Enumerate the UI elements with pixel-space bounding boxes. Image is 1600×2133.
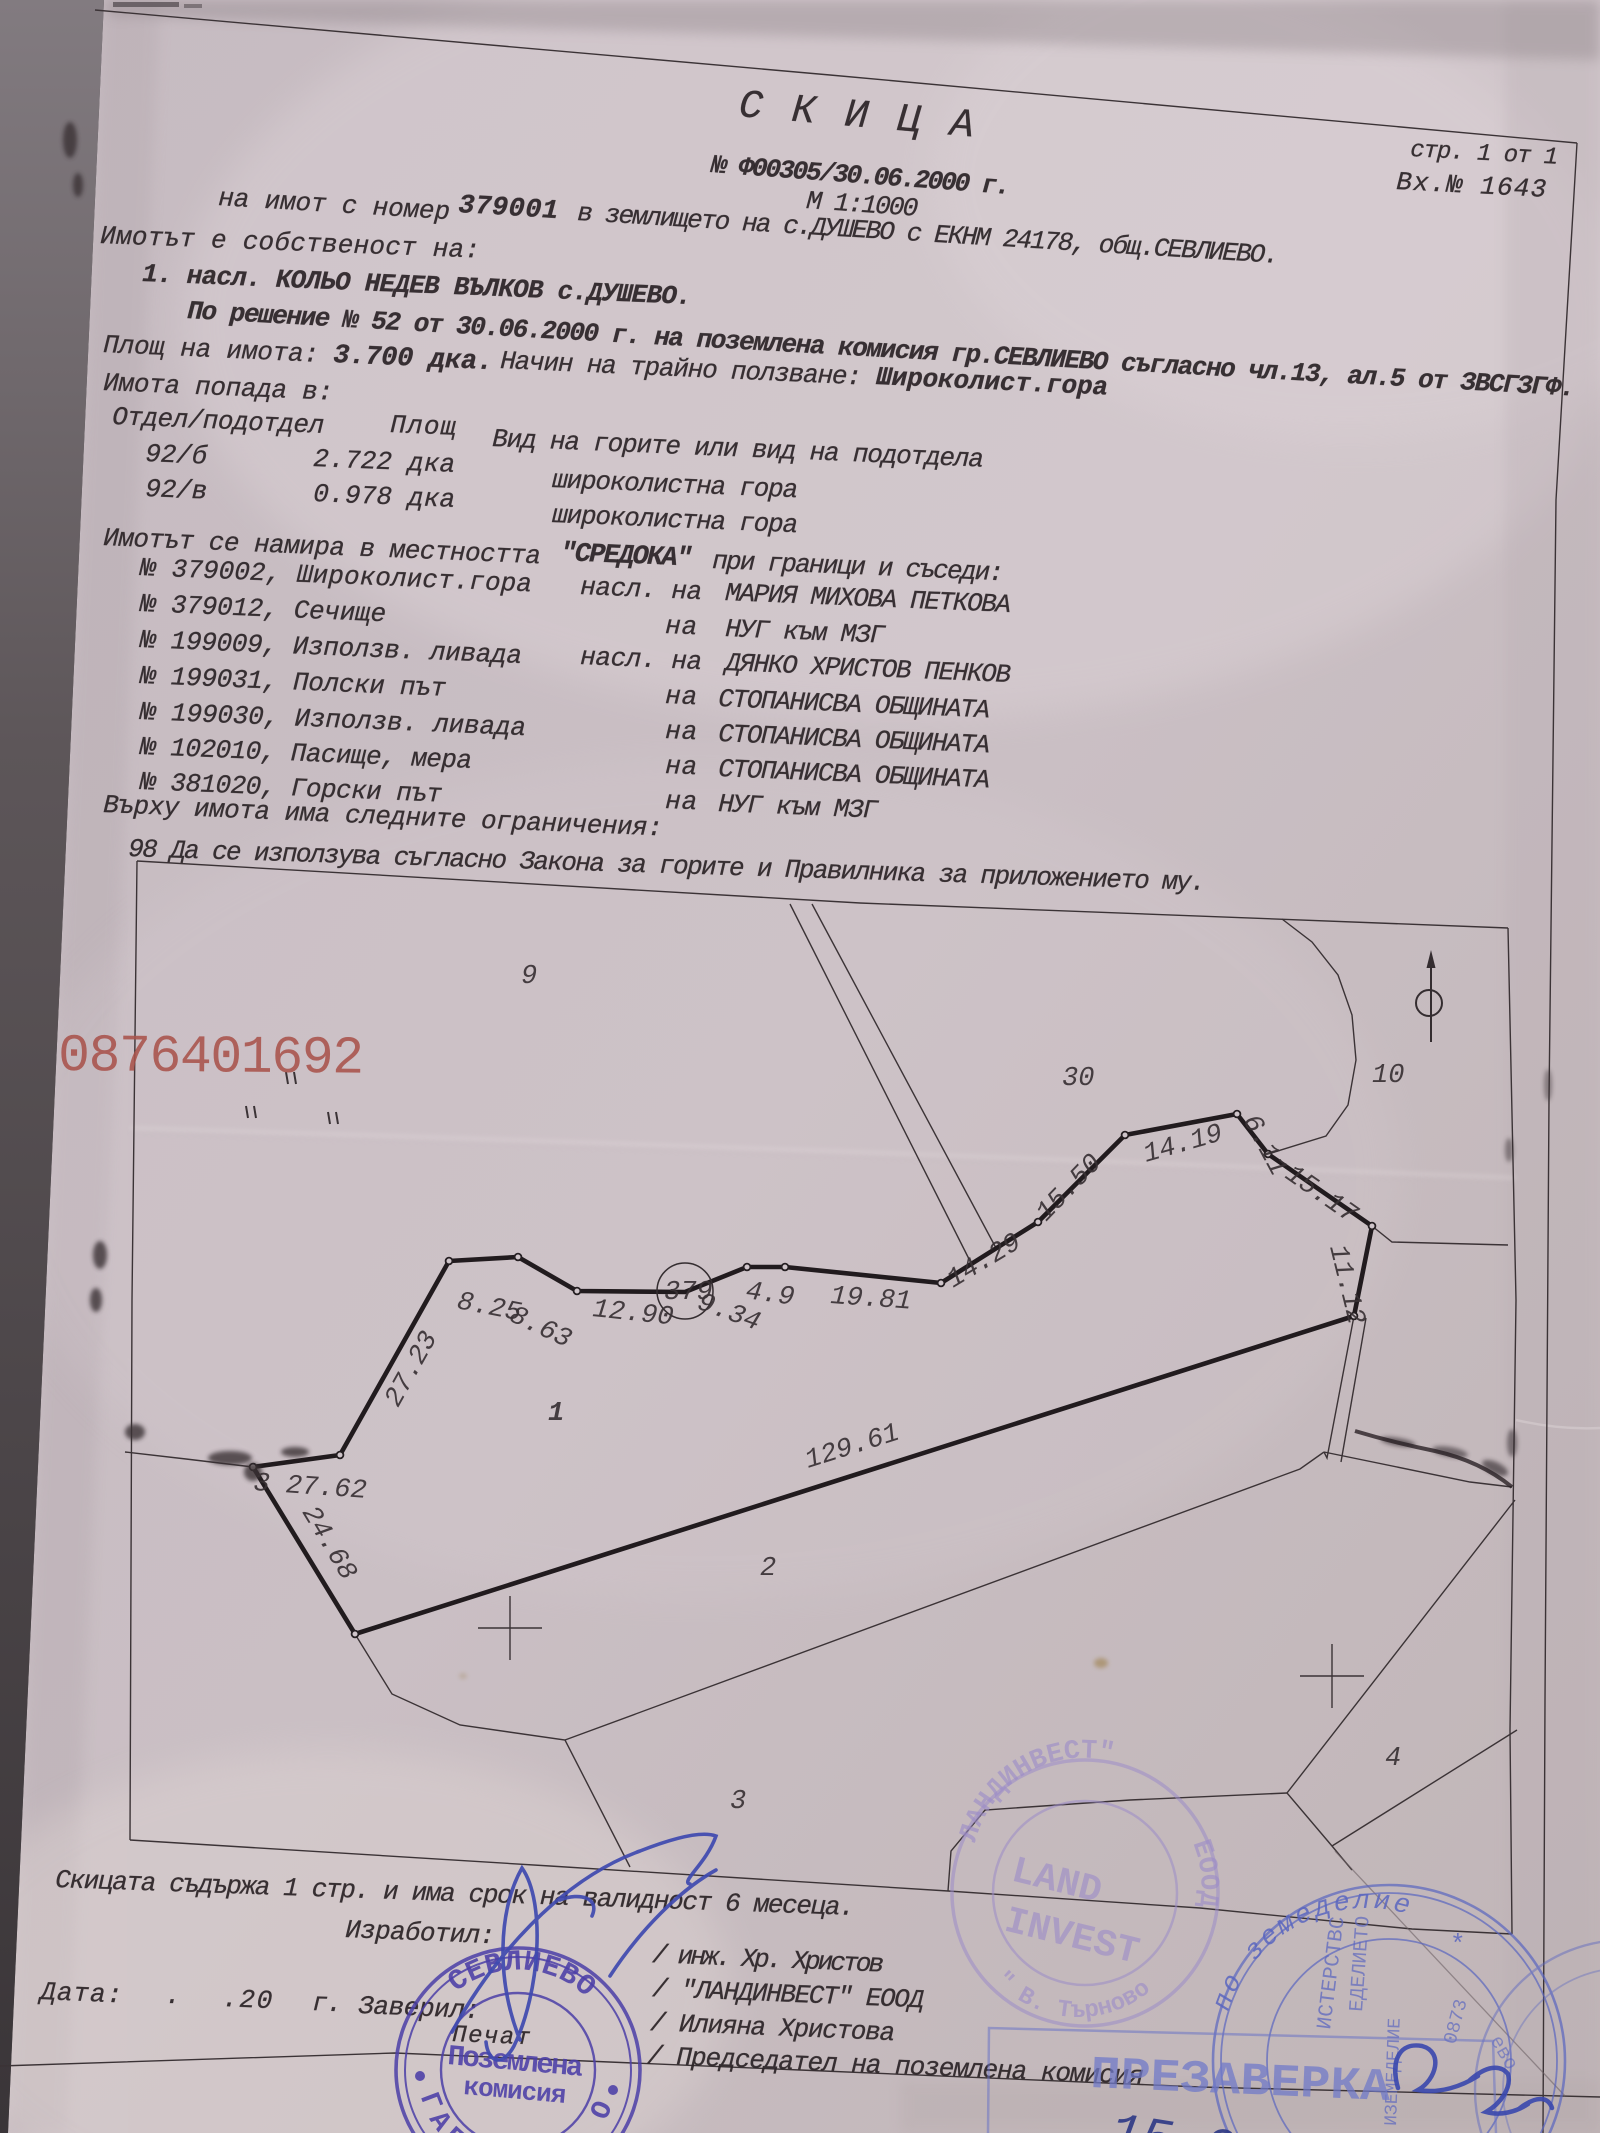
svg-text:г.: г. [312, 1988, 343, 2019]
svg-text:0.978 дка: 0.978 дка [313, 479, 456, 515]
svg-text:9: 9 [521, 962, 537, 992]
svg-text:на: на [665, 681, 698, 712]
svg-text:19.81: 19.81 [829, 1282, 912, 1318]
svg-text:1: 1 [548, 1399, 564, 1429]
svg-text:Дата:: Дата: [37, 1977, 123, 2011]
svg-text:2: 2 [760, 1554, 776, 1584]
svg-text:на: на [665, 611, 698, 642]
svg-text:на: на [665, 751, 698, 782]
svg-text:на: на [665, 716, 698, 747]
svg-text:92/в: 92/в [145, 474, 208, 507]
svg-text:насл. на: насл. на [580, 642, 703, 677]
svg-text:4: 4 [1385, 1744, 1401, 1774]
svg-text:.: . [165, 1981, 181, 2011]
svg-text:10: 10 [1372, 1061, 1404, 1091]
svg-text:"СРЕДОКА": "СРЕДОКА" [560, 539, 693, 575]
svg-text:30: 30 [1062, 1064, 1094, 1094]
svg-text:Изработил:: Изработил: [345, 1915, 496, 1951]
svg-text:0876401692: 0876401692 [58, 1026, 365, 1089]
svg-text:2.722 дка: 2.722 дка [313, 444, 456, 480]
svg-text:.20: .20 [222, 1984, 273, 2016]
svg-text:3: 3 [730, 1787, 746, 1817]
svg-text:379001: 379001 [457, 191, 559, 227]
svg-text:на: на [665, 786, 698, 817]
svg-text:92/б: 92/б [145, 439, 209, 472]
svg-text:насл. на: насл. на [580, 572, 703, 607]
svg-text:*: * [1450, 1930, 1466, 1960]
